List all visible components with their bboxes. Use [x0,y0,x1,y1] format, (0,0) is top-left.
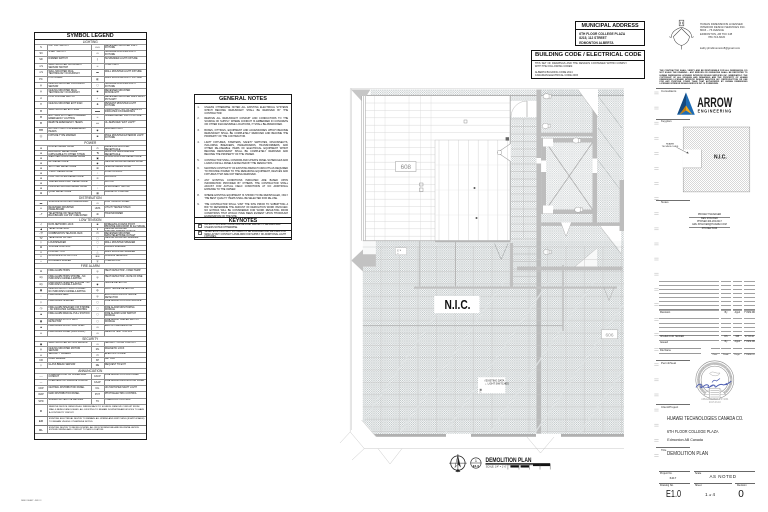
svg-text:⎋: ⎋ [480,391,482,394]
svg-text:DEMOLITION PLAN: DEMOLITION PLAN [486,457,532,464]
svg-text:N.I.C.: N.I.C. [445,297,471,312]
svg-text:608: 608 [401,164,412,171]
svg-text:▩: ▩ [480,389,482,392]
svg-text:1: 1 [475,459,477,463]
svg-text:606: 606 [605,333,613,339]
svg-text:◫ S: ◫ S [397,249,402,252]
svg-text:E1.0: E1.0 [473,464,480,468]
svg-text:∟ LIGHT SWITCHES: ∟ LIGHT SWITCHES [485,382,510,385]
svg-text:ENGINEERING: ENGINEERING [698,108,733,113]
svg-text:SCALE: 1/4" = 1'-0": SCALE: 1/4" = 1'-0" [486,465,507,468]
svg-text:N.I.C.: N.I.C. [714,155,727,161]
